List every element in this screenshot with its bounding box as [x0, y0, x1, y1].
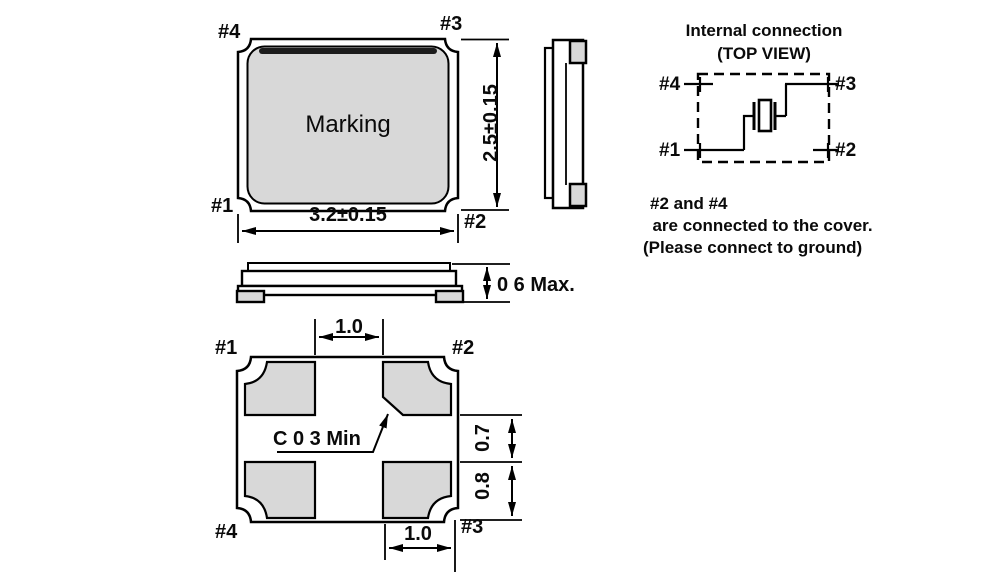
- schematic-pin1-label: #1: [659, 141, 680, 160]
- note-line-3: (Please connect to ground): [643, 237, 873, 259]
- top-view-pin3-label: #3: [440, 14, 462, 34]
- note-line-2: are connected to the cover.: [643, 215, 873, 237]
- bottom-view-pin2-label: #2: [452, 338, 474, 358]
- thickness-dimension-label: 0 6 Max.: [497, 275, 575, 295]
- side-view-outline: [545, 40, 586, 208]
- top-view-pin4-label: #4: [218, 22, 240, 42]
- crystal-package-drawing: #4 #3 #1 #2 Marking 3.2±0.15 2.5±0.15 In…: [0, 0, 985, 585]
- bottom-view-pin3-label: #3: [461, 517, 483, 537]
- cover-ground-note: #2 and #4 are connected to the cover. (P…: [643, 193, 873, 259]
- note-line-1: #2 and #4: [650, 193, 873, 215]
- profile-view-outline: [237, 263, 510, 302]
- pad-height-dimension-label: 0.8: [473, 472, 493, 500]
- schematic-pin3-label: #3: [835, 75, 856, 94]
- top-pitch-dimension-label: 1.0: [335, 317, 363, 337]
- width-dimension-label: 3.2±0.15: [309, 205, 387, 225]
- top-view-pin1-label: #1: [211, 196, 233, 216]
- internal-connection-title: Internal connection: [686, 22, 843, 39]
- schematic-pin2-label: #2: [835, 141, 856, 160]
- bottom-view-pin4-label: #4: [215, 522, 237, 542]
- chamfer-note-label: C 0 3 Min: [273, 429, 361, 449]
- top-view-pin2-label: #2: [464, 212, 486, 232]
- bottom-view-pin1-label: #1: [215, 338, 237, 358]
- internal-connection-schematic: [684, 74, 839, 162]
- internal-connection-subtitle: (TOP VIEW): [717, 45, 811, 62]
- schematic-pin4-label: #4: [659, 75, 680, 94]
- pad-gap-dimension-label: 0.7: [473, 424, 493, 452]
- marking-text: Marking: [305, 113, 390, 137]
- height-dimension-label: 2.5±0.15: [481, 84, 501, 162]
- bottom-pitch-dimension-label: 1.0: [404, 524, 432, 544]
